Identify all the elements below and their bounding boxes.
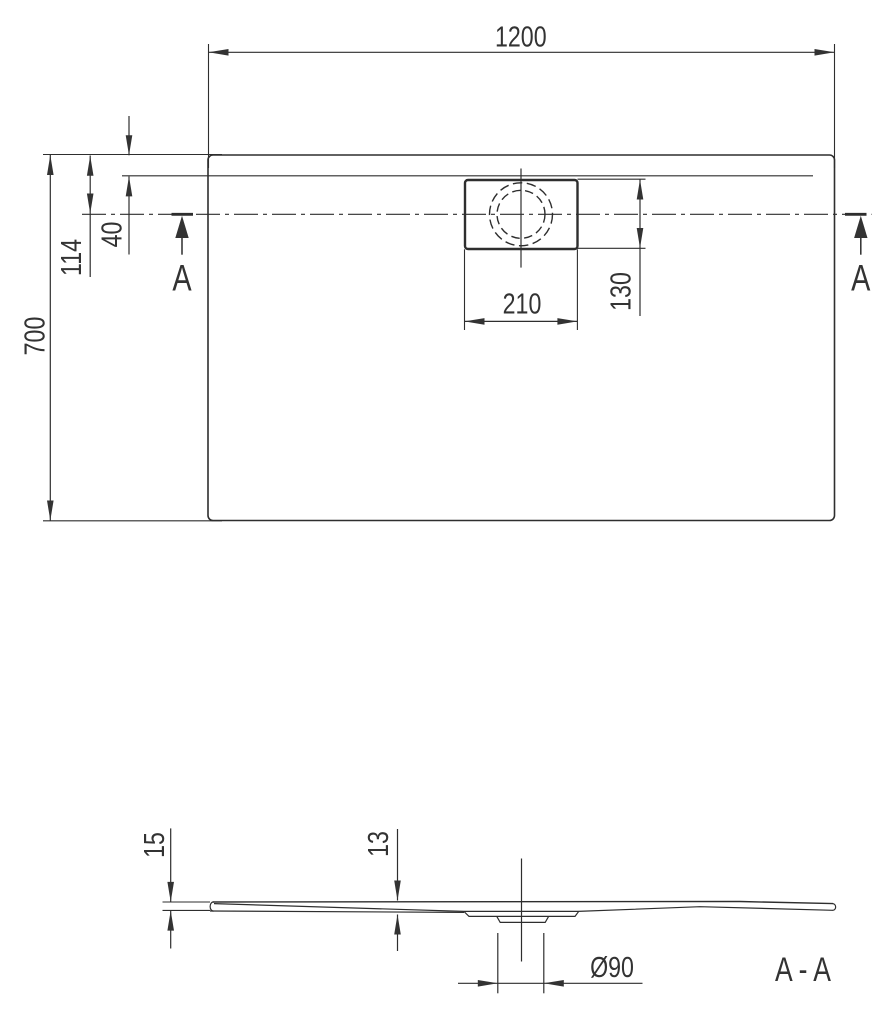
svg-text:A - A: A - A: [775, 951, 832, 989]
svg-text:700: 700: [18, 317, 51, 356]
svg-text:40: 40: [95, 222, 128, 248]
svg-text:15: 15: [137, 832, 170, 858]
svg-text:A: A: [172, 258, 192, 299]
svg-text:1200: 1200: [495, 20, 547, 53]
svg-text:13: 13: [361, 831, 394, 857]
svg-text:A: A: [851, 258, 871, 299]
svg-text:130: 130: [604, 272, 637, 311]
svg-text:114: 114: [54, 239, 87, 276]
svg-text:210: 210: [503, 287, 542, 320]
svg-text:Ø90: Ø90: [590, 950, 634, 983]
